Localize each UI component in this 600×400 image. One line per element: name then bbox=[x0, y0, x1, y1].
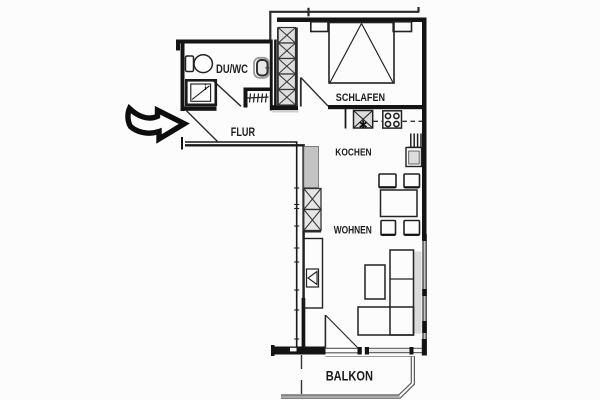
svg-text:FLUR: FLUR bbox=[231, 125, 255, 139]
svg-text:KOCHEN: KOCHEN bbox=[335, 147, 371, 158]
svg-text:DU/WC: DU/WC bbox=[216, 62, 248, 76]
svg-text:BALKON: BALKON bbox=[326, 368, 373, 383]
svg-text:WOHNEN: WOHNEN bbox=[334, 224, 372, 236]
svg-text:SCHLAFEN: SCHLAFEN bbox=[336, 92, 385, 104]
